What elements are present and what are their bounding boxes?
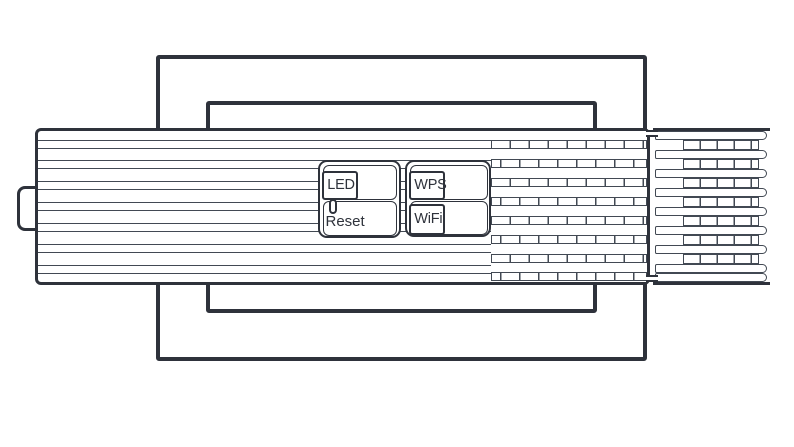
panel-connector-bottom bbox=[646, 275, 658, 282]
side-vent-brick-row bbox=[683, 254, 759, 264]
wifi-cell: WiFi bbox=[410, 201, 488, 235]
panel-connector-top bbox=[646, 130, 658, 137]
side-vent-brick-row bbox=[683, 235, 759, 245]
reset-label: Reset bbox=[326, 214, 365, 229]
side-vent-bar bbox=[655, 207, 767, 216]
side-vent-bar bbox=[655, 245, 767, 254]
vent-grid-row bbox=[491, 178, 647, 187]
vent-slat bbox=[38, 244, 491, 253]
button-group-wps-wifi: WPS WiFi bbox=[405, 160, 491, 237]
vent-grid-row bbox=[491, 140, 647, 149]
side-vent-bar bbox=[655, 150, 767, 159]
wps-button: WPS bbox=[409, 171, 445, 200]
wifi-label: WiFi bbox=[414, 211, 442, 227]
vent-grid-row bbox=[491, 272, 647, 281]
vent-grid-row bbox=[491, 216, 647, 225]
vent-slat bbox=[38, 140, 491, 149]
reset-cell: Reset bbox=[323, 201, 397, 236]
side-vent-bar bbox=[655, 264, 767, 273]
led-button: LED bbox=[322, 171, 358, 200]
led-cell: LED bbox=[323, 165, 397, 200]
side-vent-brick-row bbox=[683, 178, 759, 188]
side-vent-bar bbox=[655, 169, 767, 178]
side-vent-brick-row bbox=[683, 197, 759, 207]
wps-label: WPS bbox=[414, 177, 446, 193]
side-vent-bar bbox=[655, 188, 767, 197]
side-vent-brick-row bbox=[683, 159, 759, 169]
button-group-led-reset: LED Reset bbox=[318, 160, 401, 238]
vent-slat bbox=[38, 265, 491, 274]
side-vent-panel bbox=[653, 128, 770, 285]
vent-grid-row bbox=[491, 159, 647, 168]
vent-grid-row bbox=[491, 254, 647, 263]
vent-grid-row bbox=[491, 197, 647, 206]
reset-pinhole bbox=[329, 199, 337, 214]
side-vent-bar bbox=[655, 226, 767, 235]
vent-grid bbox=[491, 131, 647, 282]
side-vent-brick-row bbox=[683, 216, 759, 226]
led-label: LED bbox=[327, 177, 355, 193]
side-vent-bar bbox=[655, 131, 767, 140]
side-vent-bar bbox=[655, 273, 767, 282]
wifi-button: WiFi bbox=[409, 204, 445, 235]
side-vent-brick-row bbox=[683, 140, 759, 150]
vent-grid-row bbox=[491, 235, 647, 244]
wps-cell: WPS bbox=[410, 165, 488, 200]
device-diagram: LED Reset WPS WiFi bbox=[0, 0, 794, 447]
